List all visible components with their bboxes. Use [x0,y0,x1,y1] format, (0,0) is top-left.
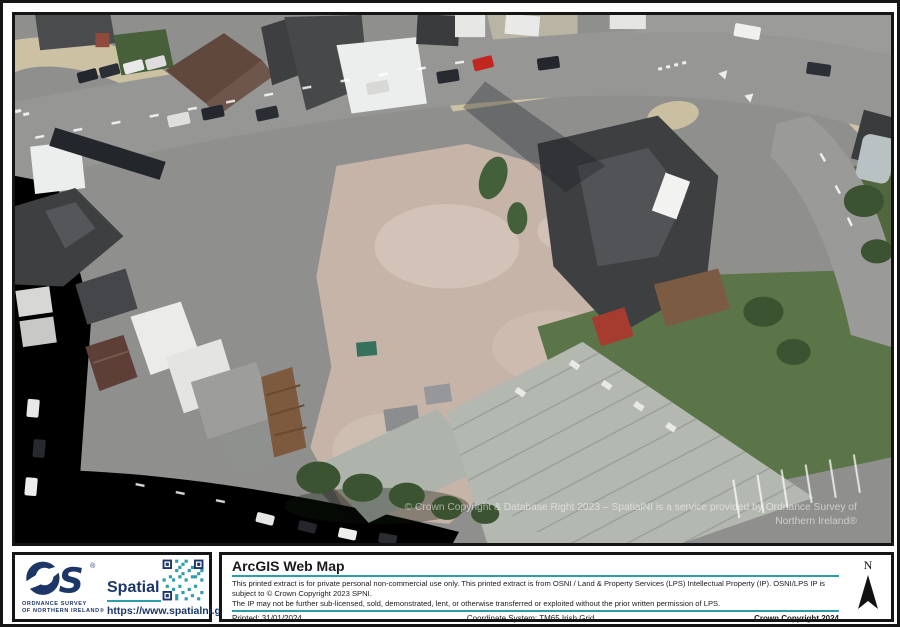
north-indicator: N [853,558,883,620]
qr-code [161,558,205,602]
map-viewport: © Crown Copyright & Database Right 2023 … [12,12,894,546]
north-label: N [853,558,883,573]
osni-logo: S ® [21,559,105,601]
watermark-line1: © Crown Copyright & Database Right 2023 … [405,502,857,513]
osni-org-name: ORDNANCE SURVEY OF NORTHERN IRELAND® [22,601,104,615]
svg-text:®: ® [90,562,96,570]
svg-text:S: S [59,561,84,601]
north-arrow-icon [855,573,881,613]
map-info-panel: ArcGIS Web Map This printed extract is f… [219,552,894,622]
teal-divider [232,610,839,612]
printed-date: Printed: 31/01/2024 [232,614,302,623]
map-title: ArcGIS Web Map [232,558,839,574]
copyright-label: Crown Copyright 2024 [754,614,839,623]
disclaimer-text-2: The IP may not be further sub-licensed, … [232,599,839,609]
logo-panel: S ® ORDNANCE SURVEY OF NORTHERN IRELAND®… [12,552,212,622]
printed-map-page: { "map": { "watermark_line1": "© Crown C… [0,0,900,627]
aerial-photo: © Crown Copyright & Database Right 2023 … [15,15,891,543]
meta-row: Printed: 31/01/2024 Coordinate System: T… [232,614,839,623]
disclaimer-text-1: This printed extract is for private pers… [232,579,839,599]
watermark-line2: Northern Ireland® [775,516,857,527]
map-info-content: ArcGIS Web Map This printed extract is f… [232,558,839,623]
teal-divider [232,575,839,577]
coordinate-system: Coordinate System: TM65 Irish Grid [467,614,594,623]
